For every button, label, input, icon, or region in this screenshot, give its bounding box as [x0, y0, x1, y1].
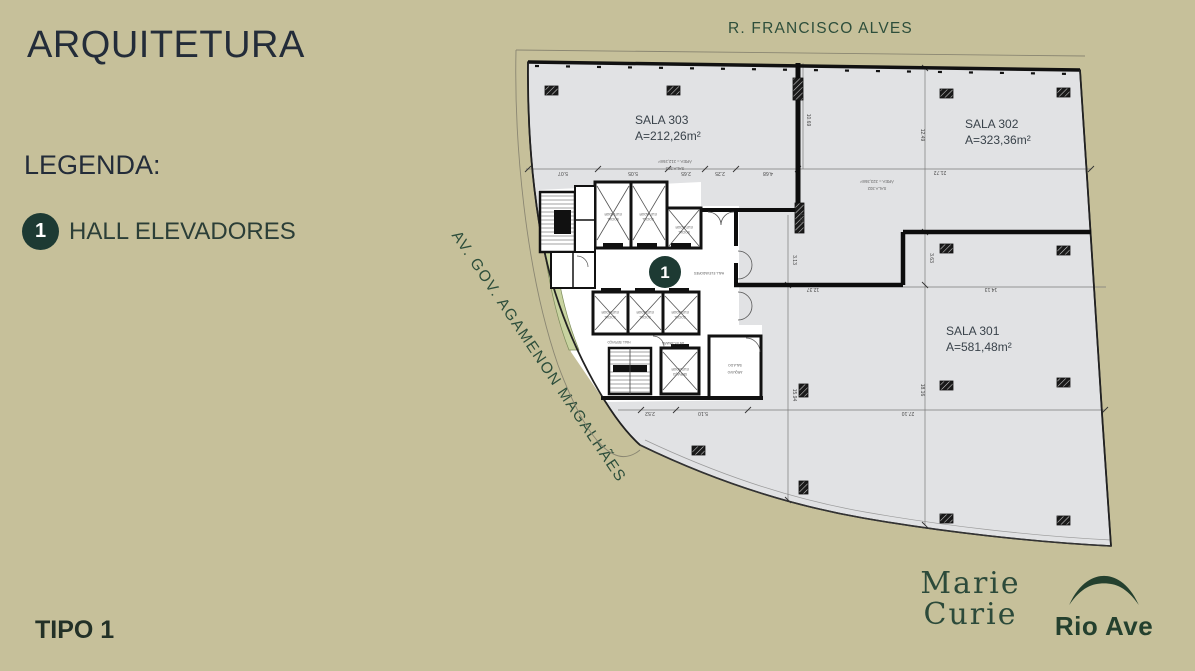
marie-curie-line2: Curie	[898, 599, 1043, 630]
svg-text:SALA 302: SALA 302	[965, 117, 1019, 131]
legend-item-hall-elevadores: 1 HALL ELEVADORES	[22, 213, 296, 250]
legend-title: LEGENDA:	[24, 150, 161, 181]
svg-text:15.94: 15.94	[791, 389, 797, 402]
svg-text:2.65: 2.65	[681, 170, 691, 176]
svg-text:SOCIAL: SOCIAL	[607, 217, 619, 221]
svg-text:SOCIAL: SOCIAL	[642, 217, 654, 221]
svg-text:12.49: 12.49	[919, 129, 925, 142]
rio-ave-logo: Rio Ave	[1048, 574, 1160, 642]
svg-text:ARQUIVO: ARQUIVO	[727, 370, 742, 374]
svg-text:SOCIAL: SOCIAL	[604, 315, 616, 319]
svg-text:ELEVADOR: ELEVADOR	[639, 212, 657, 216]
svg-text:5.07: 5.07	[558, 170, 568, 176]
svg-text:ANTECÂMARA: ANTECÂMARA	[661, 341, 684, 345]
svg-text:2.25: 2.25	[715, 170, 725, 176]
svg-text:ELEVADOR: ELEVADOR	[671, 310, 689, 314]
svg-text:SERVIÇO: SERVIÇO	[672, 372, 687, 376]
hall-badge-number: 1	[660, 263, 669, 282]
marie-curie-line1: Marie	[898, 568, 1043, 599]
svg-text:SALA 301: SALA 301	[946, 324, 1000, 338]
arch-icon	[1064, 574, 1144, 606]
marie-curie-logo: Marie Curie	[898, 568, 1043, 630]
slide-canvas: { "slide": { "title": "ARQUITETURA", "le…	[0, 0, 1195, 671]
svg-text:A=212,26m²: A=212,26m²	[635, 129, 701, 143]
svg-text:10.69: 10.69	[805, 114, 811, 127]
svg-text:ELEVADOR: ELEVADOR	[675, 225, 693, 229]
svg-text:HALL SERVIÇO: HALL SERVIÇO	[607, 340, 631, 344]
page-title: ARQUITETURA	[27, 24, 305, 67]
svg-text:ELEVADOR: ELEVADOR	[671, 367, 689, 371]
svg-text:ÁREA = 212,26m²: ÁREA = 212,26m²	[658, 159, 692, 164]
svg-text:ÁREA = 323,36m²: ÁREA = 323,36m²	[860, 179, 894, 184]
svg-text:3.13: 3.13	[791, 255, 797, 265]
svg-text:ELEVADOR: ELEVADOR	[604, 212, 622, 216]
svg-text:ELEVADOR: ELEVADOR	[601, 310, 619, 314]
legend-number-badge: 1	[22, 213, 59, 250]
svg-text:18.16: 18.16	[919, 384, 925, 397]
svg-text:A=323,36m²: A=323,36m²	[965, 133, 1031, 147]
svg-text:4.68: 4.68	[763, 170, 773, 176]
svg-text:ELEVADOR: ELEVADOR	[636, 310, 654, 314]
svg-text:14.13: 14.13	[985, 286, 998, 292]
svg-text:1.95: 1.95	[798, 213, 804, 223]
svg-text:SOCIAL: SOCIAL	[678, 230, 690, 234]
svg-text:SOCIAL: SOCIAL	[639, 315, 651, 319]
svg-text:SOCIAL: SOCIAL	[674, 315, 686, 319]
svg-text:21.72: 21.72	[934, 169, 947, 175]
svg-text:5.10: 5.10	[698, 410, 708, 416]
floor-plan: 1 HALL ELEVADORES	[513, 20, 1113, 565]
hall-mini-label: HALL ELEVADORES	[694, 271, 724, 275]
svg-text:12.37: 12.37	[807, 286, 820, 292]
svg-text:A=581,48m²: A=581,48m²	[946, 340, 1012, 354]
rio-ave-text: Rio Ave	[1048, 611, 1160, 642]
svg-text:SALA 303: SALA 303	[635, 113, 689, 127]
svg-text:3.63: 3.63	[928, 253, 934, 263]
svg-text:SALA 302: SALA 302	[867, 186, 886, 191]
svg-text:27.10: 27.10	[902, 410, 915, 416]
legend-item-label: HALL ELEVADORES	[69, 218, 296, 246]
svg-text:2.52: 2.52	[645, 410, 655, 416]
svg-text:SALA DO: SALA DO	[728, 363, 742, 367]
type-label: TIPO 1	[35, 616, 114, 645]
svg-text:5.05: 5.05	[628, 170, 638, 176]
